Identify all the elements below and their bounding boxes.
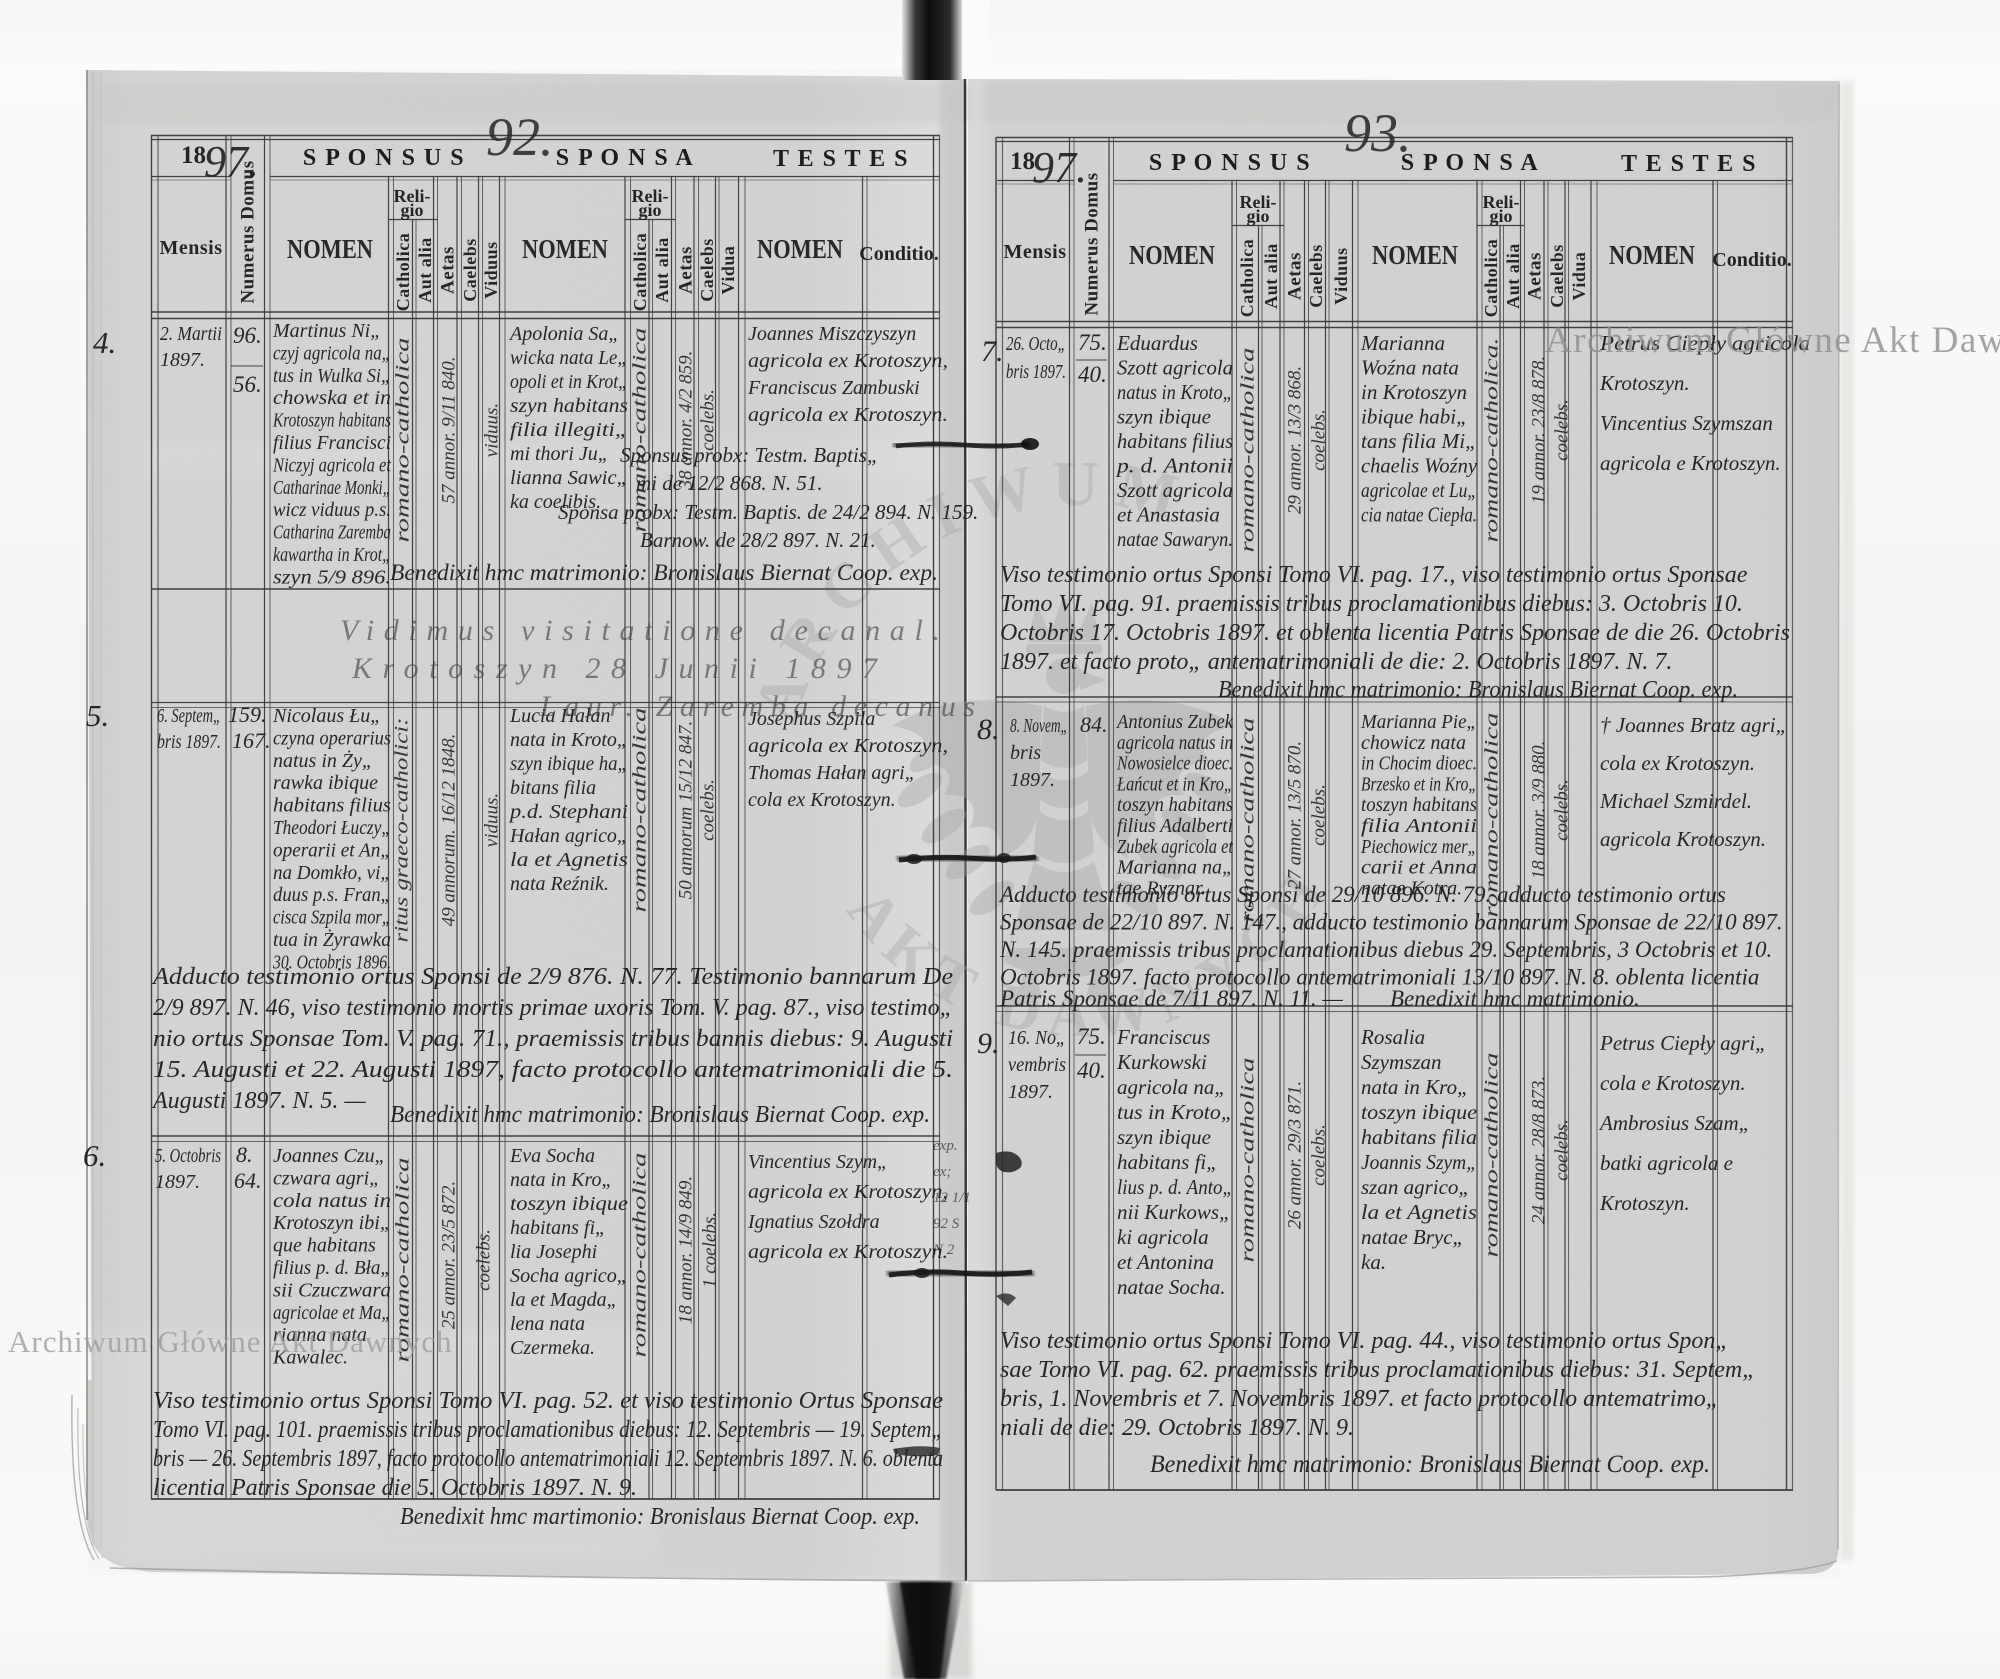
svg-text:Benedixit hmc matrimonio: Br: Benedixit hmc matrimonio: Bronislaus Bie… (1150, 1451, 1710, 1478)
svg-text:Eva Socha: Eva Socha (509, 1145, 595, 1167)
svg-text:agricola ex Krotoszyn,: agricola ex Krotoszyn, (748, 350, 948, 372)
svg-text:cola e Krotoszyn.: cola e Krotoszyn. (1600, 1071, 1746, 1095)
svg-text:1 coelebs.: 1 coelebs. (700, 1212, 721, 1288)
svg-text:kawartha in Krot„: kawartha in Krot„ (273, 544, 391, 566)
svg-text:1897.: 1897. (160, 349, 205, 371)
svg-text:szyn ibique ha„: szyn ibique ha„ (510, 753, 628, 775)
svg-text:Michael Szmirdel.: Michael Szmirdel. (1599, 789, 1752, 813)
svg-text:Sponsus probx: Testm. Baptis„: Sponsus probx: Testm. Baptis„ (620, 443, 879, 467)
svg-text:chowicz nata: chowicz nata (1361, 732, 1466, 754)
svg-text:N 2: N 2 (932, 1242, 955, 1258)
svg-text:NOMEN: NOMEN (757, 234, 843, 264)
svg-text:toszyn ibique: toszyn ibique (510, 1193, 628, 1215)
svg-text:coelebs.: coelebs. (1309, 784, 1330, 846)
svg-text:75.: 75. (1077, 1024, 1106, 1049)
svg-text:romano-catholica: romano-catholica (630, 708, 651, 913)
svg-text:coelebs.: coelebs. (474, 1229, 495, 1291)
svg-text:Adducto testimonio ortus Spon: Adducto testimonio ortus Sponsi de 2/9 8… (151, 964, 954, 990)
svg-text:duus p.s. Fran„: duus p.s. Fran„ (273, 884, 391, 906)
svg-text:S P O N S U S: S P O N S U S (303, 145, 465, 171)
svg-text:27 annor. 13/5 870.: 27 annor. 13/5 870. (1285, 741, 1306, 889)
svg-text:czyna operarius: czyna operarius (273, 727, 391, 749)
svg-text:Benedixit hmc martimonio: Bro: Benedixit hmc martimonio: Bronislaus Bie… (400, 1504, 920, 1530)
svg-text:chowska et in: chowska et in (273, 387, 391, 409)
svg-text:coelebs.: coelebs. (1309, 1124, 1330, 1186)
svg-text:ka.: ka. (1361, 1250, 1386, 1274)
svg-text:in Krotoszyn: in Krotoszyn (1361, 380, 1467, 404)
svg-text:lia Josephi: lia Josephi (510, 1241, 597, 1263)
svg-text:Krotoszyn habitans: Krotoszyn habitans (272, 410, 391, 432)
svg-text:bitans filia: bitans filia (510, 777, 596, 799)
svg-text:ritus graeco-catholici:: ritus graeco-catholici: (392, 718, 413, 943)
svg-text:toszyn habitans: toszyn habitans (1361, 794, 1477, 816)
svg-text:bris, 1. Novembris et 7. Nove: bris, 1. Novembris et 7. Novembris 1897.… (1000, 1386, 1719, 1412)
svg-text:Brzesko et in Kro„: Brzesko et in Kro„ (1361, 773, 1477, 795)
svg-text:habitans filius: habitans filius (1117, 429, 1233, 453)
svg-text:Łańcut et in Kro„: Łańcut et in Kro„ (1116, 773, 1233, 795)
svg-text:Adducto testimonio ortus Spon: Adducto testimonio ortus Sponsi de 29/10… (998, 882, 1726, 907)
svg-text:Aetas: Aetas (437, 246, 458, 294)
svg-text:15. Augusti et 22. Augusti 189: 15. Augusti et 22. Augusti 1897, facto p… (153, 1057, 953, 1083)
svg-text:romano-catholica: romano-catholica (1238, 348, 1259, 553)
svg-text:N. 145. praemissis tribus pro: N. 145. praemissis tribus proclamationib… (999, 937, 1772, 962)
svg-text:Marianna: Marianna (1360, 331, 1445, 355)
svg-text:agricola na„: agricola na„ (1117, 1075, 1226, 1099)
svg-text:Viso testimonio ortus Sponsi: Viso testimonio ortus Sponsi Tomo VI. pa… (153, 1388, 943, 1414)
svg-text:Mensis: Mensis (160, 237, 223, 259)
svg-text:wicka nata Le„: wicka nata Le„ (510, 347, 628, 369)
svg-text:mi de 12/2 868. N. 51.: mi de 12/2 868. N. 51. (636, 471, 823, 495)
svg-text:1897. et facto proto„ antemat: 1897. et facto proto„ antematrimoniali d… (1000, 649, 1672, 675)
svg-text:et Antonina: et Antonina (1117, 1250, 1214, 1274)
svg-text:Benedixit hmc matrimonio: Bro: Benedixit hmc matrimonio: Bronislaus Bie… (390, 1102, 930, 1128)
svg-text:romano-catholica: romano-catholica (393, 338, 414, 543)
svg-text:Aetas: Aetas (675, 246, 696, 294)
svg-text:Franciscus Zambuski: Franciscus Zambuski (747, 377, 920, 399)
svg-text:Aut alia: Aut alia (415, 237, 435, 303)
svg-text:Benedixit hmc matrimonio.: Benedixit hmc matrimonio. (1390, 986, 1640, 1011)
svg-text:NOMEN: NOMEN (1372, 240, 1458, 270)
svg-text:romano-catholica: romano-catholica (1238, 1058, 1259, 1263)
svg-text:romano-catholica: romano-catholica (630, 1153, 651, 1358)
svg-text:opoli et in Krot„: opoli et in Krot„ (510, 371, 628, 393)
svg-text:szyn ibique: szyn ibique (1117, 405, 1211, 429)
svg-text:agricola ex Krotoszyn,: agricola ex Krotoszyn, (748, 735, 948, 757)
svg-text:Eduardus: Eduardus (1116, 331, 1198, 355)
svg-text:czyj agricola na„: czyj agricola na„ (273, 342, 391, 364)
svg-text:tua in Żyrawka: tua in Żyrawka (273, 928, 391, 951)
svg-text:29 annor. 13/3 868.: 29 annor. 13/3 868. (1285, 366, 1306, 514)
svg-text:64.: 64. (234, 1168, 262, 1193)
svg-text:Apolonia Sa„: Apolonia Sa„ (508, 323, 619, 345)
svg-text:cisca Szpila mor„: cisca Szpila mor„ (273, 907, 391, 929)
svg-text:18 annor. 14/9 849.: 18 annor. 14/9 849. (676, 1176, 697, 1324)
svg-text:ex;: ex; (933, 1164, 951, 1180)
svg-text:56.: 56. (233, 372, 262, 397)
svg-text:et Anastasia: et Anastasia (1117, 503, 1220, 527)
svg-text:50 annorum 15/12 847.: 50 annorum 15/12 847. (676, 721, 697, 899)
svg-text:38 annor. 4/2 859.: 38 annor. 4/2 859. (676, 351, 697, 491)
svg-text:T E S T E S: T E S T E S (1621, 151, 1757, 177)
svg-text:bris — 26. Septembris 1897, f: bris — 26. Septembris 1897, facto protoc… (153, 1446, 943, 1472)
svg-text:12 1/1: 12 1/1 (933, 1190, 971, 1206)
svg-text:T E S T E S: T E S T E S (773, 146, 909, 172)
svg-text:Viso testimonio ortus Sponsi: Viso testimonio ortus Sponsi Tomo VI. pa… (1000, 1328, 1729, 1354)
svg-text:NOMEN: NOMEN (522, 234, 608, 264)
svg-text:operarii et An„: operarii et An„ (273, 839, 391, 861)
svg-text:† Joannes Bratz agri„: † Joannes Bratz agri„ (1600, 713, 1787, 737)
svg-text:nata in Kroto„: nata in Kroto„ (510, 729, 628, 751)
svg-text:Viso testimonio ortus Sponsi: Viso testimonio ortus Sponsi Tomo VI. pa… (1000, 562, 1748, 588)
svg-text:7.: 7. (981, 335, 1004, 368)
svg-text:Viduus: Viduus (481, 241, 501, 298)
svg-text:filius Francisci: filius Francisci (273, 432, 391, 454)
svg-text:Marianna na„: Marianna na„ (1116, 857, 1233, 879)
svg-text:habitans fi„: habitans fi„ (510, 1217, 606, 1239)
svg-text:40.: 40. (1077, 1058, 1106, 1083)
svg-text:p. d. Antonii: p. d. Antonii (1115, 454, 1233, 478)
svg-text:18 annor. 3/9 880.: 18 annor. 3/9 880. (1529, 741, 1550, 880)
svg-text:coelebs.: coelebs. (1309, 409, 1330, 471)
svg-text:niali de die: 29. Octobris 189: niali de die: 29. Octobris 1897. N. 9. (1000, 1415, 1354, 1441)
svg-text:cola natus in: cola natus in (273, 1190, 391, 1212)
svg-text:49 annorum. 16/12 1848.: 49 annorum. 16/12 1848. (439, 734, 460, 927)
svg-text:25 annor. 23/5 872.: 25 annor. 23/5 872. (439, 1181, 460, 1329)
svg-text:la et Magda„: la et Magda„ (510, 1289, 618, 1311)
svg-text:Catholica: Catholica (1237, 239, 1257, 318)
svg-text:4.: 4. (93, 325, 116, 360)
svg-text:agricola ex Krotoszyn,: agricola ex Krotoszyn, (748, 1181, 948, 1203)
svg-text:Martinus Ni„: Martinus Ni„ (272, 320, 381, 342)
svg-text:gio: gio (638, 200, 661, 220)
svg-text:Catholica: Catholica (630, 233, 650, 312)
svg-text:natae Socha.: natae Socha. (1117, 1275, 1225, 1299)
svg-text:batki agricola e: batki agricola e (1600, 1151, 1733, 1175)
svg-text:romano-catholica: romano-catholica (1482, 1053, 1503, 1258)
svg-text:habitans fi„: habitans fi„ (1117, 1150, 1218, 1174)
svg-text:Caelebs: Caelebs (697, 238, 717, 302)
svg-text:Krotoszyn.: Krotoszyn. (1599, 371, 1690, 395)
svg-text:26. Octo„: 26. Octo„ (1006, 333, 1066, 355)
svg-text:Theodori Łuczy„: Theodori Łuczy„ (273, 817, 391, 839)
svg-text:bris 1897.: bris 1897. (157, 731, 221, 753)
svg-text:2/9 897. N. 46, viso testimon: 2/9 897. N. 46, viso testimonio mortis p… (153, 995, 953, 1021)
svg-text:Vincentius Szymszan: Vincentius Szymszan (1600, 411, 1773, 435)
svg-text:p.d. Stephani: p.d. Stephani (508, 801, 628, 823)
svg-text:16. No„: 16. No„ (1008, 1027, 1066, 1049)
svg-text:Barnow. de 28/2 897. N. 21.: Barnow. de 28/2 897. N. 21. (640, 528, 876, 552)
svg-text:agricola ex Krotoszyn.: agricola ex Krotoszyn. (748, 404, 948, 426)
svg-text:filius p. d. Bła„: filius p. d. Bła„ (273, 1257, 391, 1279)
svg-text:cia natae Ciepła.: cia natae Ciepła. (1361, 503, 1477, 527)
svg-text:ki agricola: ki agricola (1117, 1225, 1209, 1249)
svg-text:2. Martii: 2. Martii (160, 323, 222, 345)
svg-text:agricola e Krotoszyn.: agricola e Krotoszyn. (1600, 451, 1781, 475)
svg-text:84.: 84. (1080, 712, 1108, 737)
svg-text:Szymszan: Szymszan (1361, 1050, 1442, 1074)
svg-text:NOMEN: NOMEN (287, 234, 373, 264)
svg-text:lianna Sawic„: lianna Sawic„ (510, 467, 628, 489)
svg-text:lena nata: lena nata (510, 1313, 585, 1335)
svg-text:natae Bryc„: natae Bryc„ (1361, 1225, 1464, 1249)
svg-text:Caelebs: Caelebs (1547, 244, 1567, 308)
svg-text:filia Antonii: filia Antonii (1361, 815, 1477, 837)
svg-text:Octobris 17. Octobris 1897.: Octobris 17. Octobris 1897. et oblenta l… (1000, 620, 1790, 646)
svg-text:S P O N S A: S P O N S A (1401, 150, 1540, 176)
svg-text:167.: 167. (232, 728, 271, 753)
svg-text:1897.: 1897. (1008, 1081, 1053, 1103)
svg-text:NOMEN: NOMEN (1129, 240, 1215, 270)
svg-text:cola ex Krotoszyn.: cola ex Krotoszyn. (748, 789, 896, 811)
svg-text:coelebs.: coelebs. (1552, 779, 1573, 841)
svg-text:Kurkowski: Kurkowski (1116, 1050, 1207, 1074)
svg-text:Lucia Hałan: Lucia Hałan (509, 705, 611, 727)
svg-text:Catholica: Catholica (1481, 239, 1501, 318)
svg-text:Archiwum Główne Akt Dawnych: Archiwum Główne Akt Dawnych (1545, 320, 2000, 361)
svg-text:Krotoszyn ibi„: Krotoszyn ibi„ (272, 1212, 391, 1234)
svg-text:Socha agrico„: Socha agrico„ (510, 1265, 628, 1287)
svg-text:Niczyj agricola et: Niczyj agricola et (272, 454, 391, 476)
svg-text:szyn 5/9 896.: szyn 5/9 896. (273, 566, 391, 588)
svg-text:NOMEN: NOMEN (1609, 240, 1695, 270)
svg-text:nio ortus Sponsae Tom. V. pag: nio ortus Sponsae Tom. V. pag. 71., prae… (153, 1026, 953, 1052)
svg-text:cola ex Krotoszyn.: cola ex Krotoszyn. (1600, 751, 1755, 775)
svg-text:Catharinae Monki„: Catharinae Monki„ (273, 477, 391, 499)
svg-text:6.: 6. (83, 1138, 106, 1173)
svg-text:Marianna Pie„: Marianna Pie„ (1360, 711, 1477, 733)
svg-text:Caelebs: Caelebs (1306, 244, 1326, 308)
svg-text:5.: 5. (86, 698, 109, 733)
svg-text:lius p. d. Anto„: lius p. d. Anto„ (1117, 1175, 1233, 1199)
svg-text:Aut alia: Aut alia (1261, 243, 1281, 309)
svg-text:Catholica: Catholica (393, 233, 413, 312)
svg-text:92 S: 92 S (933, 1216, 960, 1232)
svg-text:viduus.: viduus. (482, 403, 503, 457)
svg-text:6. Septem„: 6. Septem„ (157, 705, 221, 727)
svg-text:40.: 40. (1078, 362, 1107, 387)
svg-text:Josephus Szpila: Josephus Szpila (748, 708, 875, 730)
svg-text:Catharina Zaremba: Catharina Zaremba (273, 522, 391, 544)
svg-text:nata Reźnik.: nata Reźnik. (510, 873, 609, 895)
svg-text:9.: 9. (977, 1027, 1000, 1060)
svg-text:Caelebs: Caelebs (460, 238, 480, 302)
svg-text:Czermeka.: Czermeka. (510, 1337, 595, 1359)
svg-text:Aetas: Aetas (1284, 252, 1305, 300)
svg-text:filia illegiti„: filia illegiti„ (510, 419, 628, 441)
svg-text:Tomo VI. pag. 91. praemissis: Tomo VI. pag. 91. praemissis tribus proc… (1000, 591, 1743, 617)
svg-text:S P O N S A: S P O N S A (556, 145, 695, 171)
svg-text:ibique habi„: ibique habi„ (1361, 405, 1468, 429)
svg-text:gio: gio (400, 200, 423, 220)
svg-text:rawka ibique: rawka ibique (273, 772, 378, 794)
svg-text:Krotoszyn 28 Junii 1897: Krotoszyn 28 Junii 1897 (351, 652, 879, 685)
svg-text:Sponsae de 22/10 897. N. 147.,: Sponsae de 22/10 897. N. 147., adducto t… (1000, 910, 1783, 935)
svg-text:8.: 8. (977, 713, 1000, 746)
svg-text:8. Novem„: 8. Novem„ (1010, 715, 1068, 737)
svg-text:nii Kurkows„: nii Kurkows„ (1117, 1200, 1231, 1224)
svg-text:agricolae et Lu„: agricolae et Lu„ (1361, 478, 1477, 502)
svg-text:Archiwum Główne Akt Dawnych: Archiwum Główne Akt Dawnych (8, 1324, 453, 1359)
svg-text:5. Octobris: 5. Octobris (155, 1145, 221, 1167)
svg-text:Benedixit hmc matrimonio: Bro: Benedixit hmc matrimonio: Bronislaus Bie… (390, 560, 938, 585)
svg-text:que habitans: que habitans (273, 1235, 376, 1257)
svg-text:Conditio.: Conditio. (859, 243, 938, 265)
svg-text:97.: 97. (1032, 143, 1087, 192)
svg-text:mi thori Ju„: mi thori Ju„ (510, 443, 609, 465)
svg-text:vembris: vembris (1008, 1054, 1066, 1076)
svg-text:wicz viduus p.s.: wicz viduus p.s. (273, 499, 391, 521)
svg-text:Hałan agrico„: Hałan agrico„ (509, 825, 628, 847)
svg-text:Viduus: Viduus (1331, 247, 1351, 304)
svg-text:bris: bris (1010, 742, 1041, 764)
svg-text:Thomas Hałan agri„: Thomas Hałan agri„ (748, 762, 916, 784)
svg-text:Ignatius Szołdra: Ignatius Szołdra (747, 1211, 880, 1233)
svg-text:czwara agri„: czwara agri„ (273, 1167, 380, 1189)
svg-text:Vidua: Vidua (1569, 252, 1589, 301)
svg-text:carii et Anna: carii et Anna (1361, 857, 1477, 879)
svg-text:159.: 159. (228, 702, 267, 727)
svg-text:Sponsa probx: Testm. Baptis. d: Sponsa probx: Testm. Baptis. de 24/2 894… (558, 500, 978, 524)
svg-text:Augusti 1897. N. 5. —: Augusti 1897. N. 5. — (151, 1088, 366, 1114)
svg-text:na Domkło, vi„: na Domkło, vi„ (273, 862, 391, 884)
svg-text:coelebs.: coelebs. (1552, 1119, 1573, 1181)
svg-text:19 annor. 23/8 878.: 19 annor. 23/8 878. (1529, 356, 1550, 504)
svg-text:gio: gio (1489, 206, 1512, 226)
svg-text:93.: 93. (1344, 103, 1412, 163)
svg-text:sae Tomo VI. pag. 62. praemis: sae Tomo VI. pag. 62. praemissis tribus … (1000, 1357, 1756, 1383)
svg-text:natae Sawaryn.: natae Sawaryn. (1117, 527, 1233, 551)
svg-text:tus in Kroto„: tus in Kroto„ (1117, 1100, 1233, 1124)
svg-text:24 annor. 28/8 873.: 24 annor. 28/8 873. (1529, 1076, 1550, 1224)
svg-text:la et Agnetis: la et Agnetis (1361, 1200, 1477, 1224)
svg-text:Vidua: Vidua (718, 246, 738, 295)
svg-text:tans filia Mi„: tans filia Mi„ (1361, 429, 1477, 453)
svg-text:nata in Kro„: nata in Kro„ (1361, 1075, 1469, 1099)
svg-text:1897.: 1897. (155, 1171, 200, 1193)
svg-text:92.: 92. (486, 107, 554, 167)
svg-text:26 annor. 29/3 871.: 26 annor. 29/3 871. (1285, 1081, 1306, 1229)
svg-text:S P O N S U S: S P O N S U S (1149, 150, 1311, 176)
svg-text:exp.: exp. (933, 1138, 958, 1154)
svg-text:habitans filius: habitans filius (273, 795, 391, 817)
svg-text:96.: 96. (233, 323, 262, 348)
svg-text:natus in Kroto„: natus in Kroto„ (1117, 380, 1233, 404)
svg-text:szyn ibique: szyn ibique (1117, 1125, 1211, 1149)
svg-text:8.: 8. (236, 1142, 253, 1167)
svg-text:Numerus Domus: Numerus Domus (237, 160, 258, 303)
svg-text:viduus.: viduus. (482, 793, 503, 847)
svg-text:agricolae et Ma„: agricolae et Ma„ (273, 1302, 391, 1324)
svg-text:Conditio.: Conditio. (1712, 249, 1791, 271)
svg-text:Joannes Miszczyszyn: Joannes Miszczyszyn (748, 323, 916, 345)
svg-text:57 annor. 9/11 840.: 57 annor. 9/11 840. (439, 357, 460, 504)
svg-text:agricola natus in: agricola natus in (1117, 732, 1233, 754)
svg-text:Antonius Zubek: Antonius Zubek (1115, 711, 1234, 733)
svg-text:gio: gio (1246, 206, 1269, 226)
svg-text:Aut alia: Aut alia (652, 237, 672, 303)
svg-text:Numerus Domus: Numerus Domus (1081, 172, 1102, 315)
svg-text:in Chocim dioec.: in Chocim dioec. (1361, 753, 1477, 775)
svg-text:romano-catholica.: romano-catholica. (1482, 338, 1503, 543)
svg-text:Piechowicz mer„: Piechowicz mer„ (1360, 836, 1477, 858)
svg-text:szan agrico„: szan agrico„ (1361, 1175, 1470, 1199)
svg-text:Ambrosius Szam„: Ambrosius Szam„ (1598, 1111, 1750, 1135)
svg-text:Krotoszyn.: Krotoszyn. (1599, 1191, 1690, 1215)
svg-text:75.: 75. (1078, 330, 1107, 355)
svg-text:la et Agnetis: la et Agnetis (510, 849, 628, 871)
svg-text:sii Czuczwara: sii Czuczwara (273, 1279, 391, 1301)
svg-text:Patris Sponsae de 7/11 897. N.: Patris Sponsae de 7/11 897. N. 11. — (999, 986, 1343, 1011)
svg-text:chaelis Woźny: chaelis Woźny (1361, 454, 1478, 478)
svg-text:tus in Wulka Si„: tus in Wulka Si„ (273, 365, 391, 387)
svg-text:Aetas: Aetas (1524, 252, 1545, 300)
svg-text:agricola Krotoszyn.: agricola Krotoszyn. (1600, 827, 1766, 851)
svg-text:natus in Ży„: natus in Ży„ (273, 749, 373, 772)
svg-text:Joannis Szym„: Joannis Szym„ (1361, 1150, 1477, 1174)
svg-text:Benedixit hmc matrimonio: Bro: Benedixit hmc matrimonio: Bronislaus Bie… (1218, 677, 1738, 703)
svg-text:Petrus Ciepły agri„: Petrus Ciepły agri„ (1599, 1031, 1767, 1055)
svg-text:Aut alia: Aut alia (1503, 243, 1523, 309)
svg-text:Mensis: Mensis (1004, 241, 1067, 263)
svg-text:1897.: 1897. (1010, 769, 1055, 791)
svg-text:Vincentius Szym„: Vincentius Szym„ (748, 1151, 888, 1173)
svg-text:agricola ex Krotoszyn.: agricola ex Krotoszyn. (748, 1241, 948, 1263)
svg-text:coelebs.: coelebs. (1552, 399, 1573, 461)
svg-text:Nicolaus Łu„: Nicolaus Łu„ (272, 705, 381, 727)
svg-text:habitans filia: habitans filia (1361, 1125, 1477, 1149)
svg-text:Nowosielce dioec.: Nowosielce dioec. (1116, 753, 1233, 775)
svg-text:coelebs.: coelebs. (698, 779, 719, 841)
svg-text:toszyn ibique: toszyn ibique (1361, 1100, 1477, 1124)
svg-text:filius Adalberti: filius Adalberti (1117, 815, 1233, 837)
svg-text:Franciscus: Franciscus (1116, 1025, 1210, 1049)
svg-text:coelebs.: coelebs. (698, 389, 719, 451)
svg-text:18: 18 (181, 142, 206, 169)
svg-text:Rosalia: Rosalia (1360, 1025, 1425, 1049)
svg-text:licentia Patris Sponsae die: licentia Patris Sponsae die 5. Octobris … (153, 1475, 637, 1501)
svg-text:Zubek agricola et: Zubek agricola et (1117, 836, 1233, 858)
svg-text:Szott agricola: Szott agricola (1117, 356, 1233, 380)
svg-text:bris 1897.: bris 1897. (1006, 361, 1066, 383)
svg-text:Szott agricola: Szott agricola (1117, 478, 1233, 502)
svg-text:toszyn habitans: toszyn habitans (1117, 794, 1233, 816)
svg-text:Woźna nata: Woźna nata (1361, 356, 1459, 380)
svg-text:Joannes Czu„: Joannes Czu„ (273, 1145, 386, 1167)
svg-text:Tomo VI. pag. 101. praemissis: Tomo VI. pag. 101. praemissis tribus pro… (153, 1417, 943, 1443)
svg-text:szyn habitans: szyn habitans (510, 395, 628, 417)
svg-text:nata in Kro„: nata in Kro„ (510, 1169, 613, 1191)
